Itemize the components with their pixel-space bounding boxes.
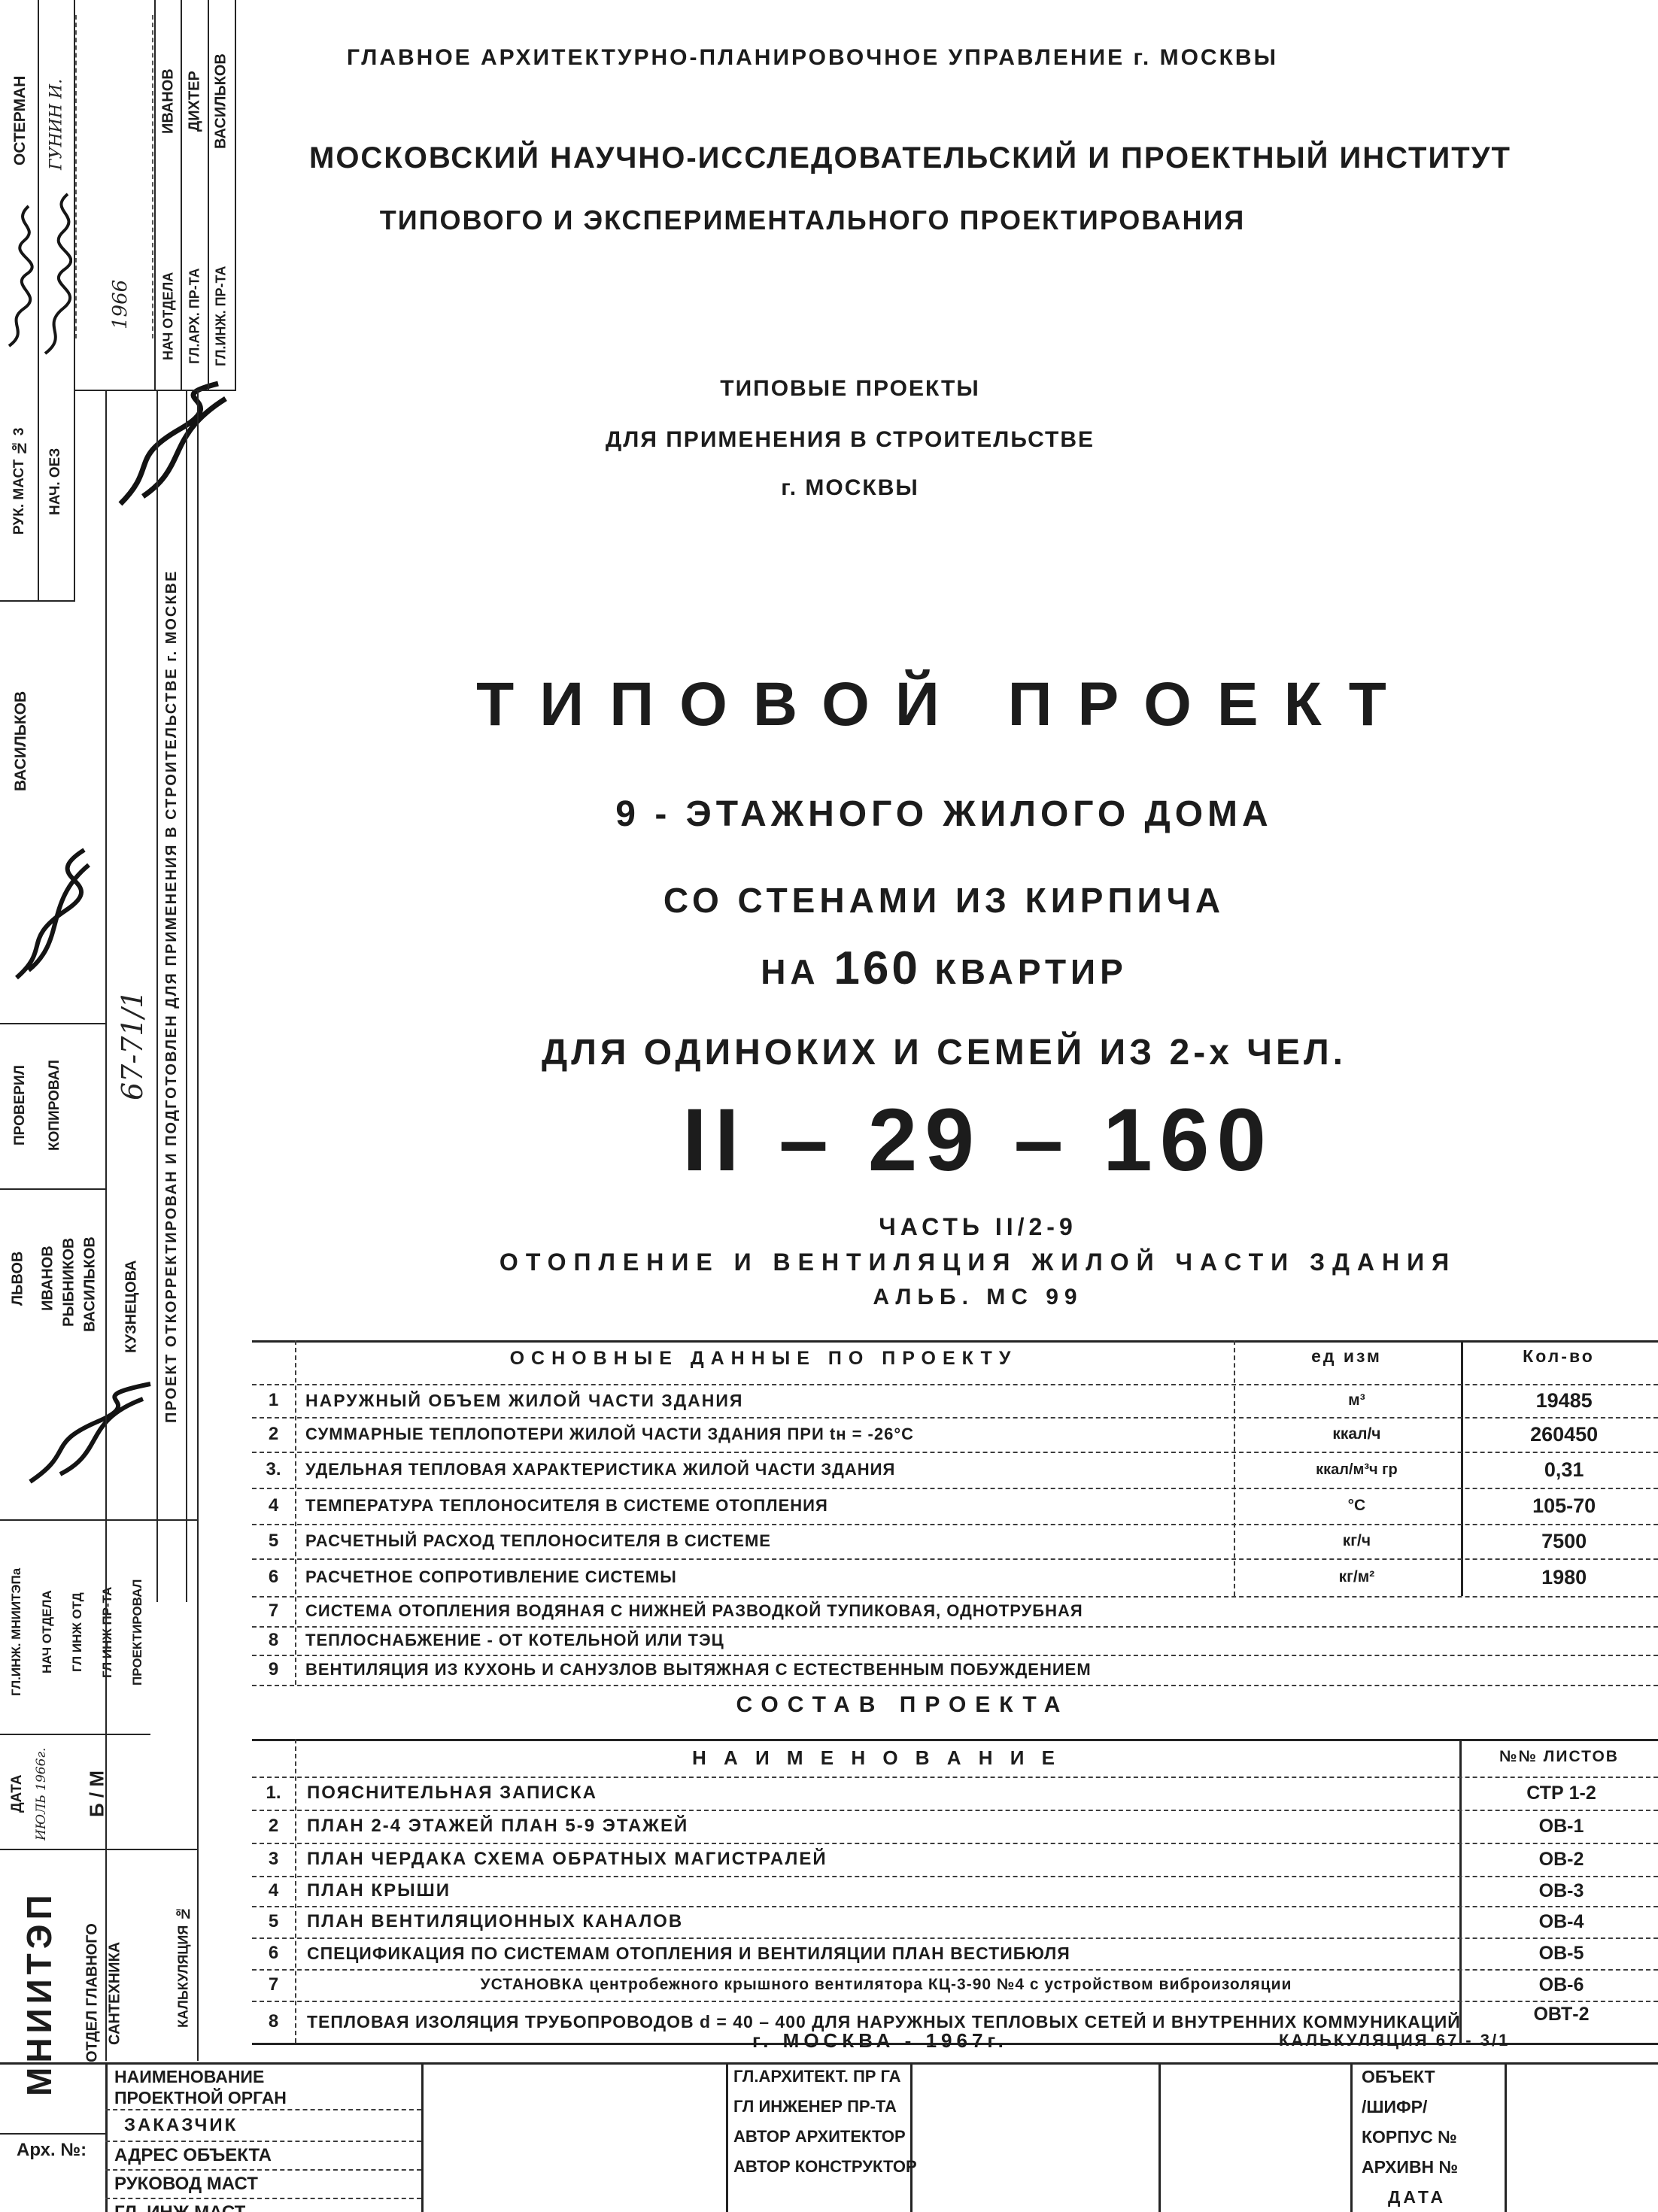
footer-org-label: ПРОЕКТНОЙ ОРГАН: [114, 2088, 287, 2108]
row-sheet: ОВ-2: [1465, 1849, 1657, 1871]
footer-org-label: РУКОВОД МАСТ: [114, 2174, 258, 2195]
contents-title: СОСТАВ ПРОЕКТА: [527, 1692, 1279, 1718]
sidebar-person-name: ИВАНОВ: [38, 1203, 59, 1354]
row-number: 3.: [252, 1459, 295, 1480]
row-sheet: ОВ-3: [1465, 1880, 1657, 1902]
row-number: 7: [252, 1974, 295, 1995]
row-sheet: ОВ-6: [1465, 1974, 1657, 1996]
row-number: 8: [252, 2011, 295, 2032]
sidebar-role-label: ГЛ.ИНЖ. МНИИТЭПа: [5, 1534, 29, 1730]
row-unit: кг/ч: [1243, 1532, 1471, 1550]
table-border: [252, 1739, 1658, 1741]
footer-org-label: ГЛ. ИНЖ МАСТ: [114, 2202, 245, 2212]
table-row: 5 РАСЧЕТНЫЙ РАСХОД ТЕПЛОНОСИТЕЛЯ В СИСТЕ…: [252, 1524, 1658, 1558]
divider: [0, 1734, 150, 1735]
row-name: ТЕПЛОСНАБЖЕНИЕ - ОТ КОТЕЛЬНОЙ ИЛИ ТЭЦ: [295, 1631, 1658, 1650]
signature: [23, 1376, 158, 1489]
calc-label: КАЛЬКУЛЯЦИЯ №: [172, 1880, 196, 2053]
row-number: 6: [252, 1567, 295, 1588]
divider: [181, 0, 182, 391]
table-border: [105, 2169, 421, 2171]
footer-table: НАИМЕНОВАНИЕ ПРОЕКТНОЙ ОРГАН ЗАКАЗЧИК АД…: [0, 2062, 1658, 2212]
title-page: РУК. МАСТ № 3 ОСТЕРМАН НАЧ. ОЕЗ ГУНИН И.…: [0, 0, 1658, 2212]
bm-mark: Б / М: [81, 1745, 113, 1843]
row-sheet: ОВ-5: [1465, 1943, 1657, 1965]
table-row: 2 СУММАРНЫЕ ТЕПЛОПОТЕРИ ЖИЛОЙ ЧАСТИ ЗДАН…: [252, 1417, 1658, 1452]
footer-person-label: АВТОР АРХИТЕКТОР: [733, 2127, 906, 2147]
main-title: ТИПОВОЙ ПРОЕКТ: [301, 669, 1587, 740]
title-line5: ДЛЯ ОДИНОКИХ И СЕМЕЙ ИЗ 2-х ЧЕЛ.: [339, 1032, 1550, 1073]
divider: [0, 1023, 105, 1024]
sidebar-person-name: ВАСИЛЬКОВ: [80, 1203, 101, 1365]
calc-number-hand: 67-71/1: [111, 970, 153, 1121]
row-number: 2: [252, 1424, 295, 1445]
sidebar-person-name: ОСТЕРМАН: [5, 45, 36, 196]
table-border: [1350, 2062, 1353, 2212]
divider: [197, 391, 199, 2061]
sidebar-role-label: ГЛ ИНЖ ПР-ТА: [96, 1534, 119, 1730]
row-name: НАРУЖНЫЙ ОБЪЕМ ЖИЛОЙ ЧАСТИ ЗДАНИЯ: [295, 1391, 1243, 1411]
footer-calc-note: КАЛЬКУЛЯЦИЯ 67 - 3/1: [1279, 2031, 1510, 2050]
sidebar-role-label: ГЛ ИНЖ ОТД: [66, 1534, 89, 1730]
divider: [74, 390, 236, 391]
row-qty: 7500: [1470, 1530, 1658, 1553]
row-number: 5: [252, 1911, 295, 1932]
org-header-line3: ТИПОВОГО И ЭКСПЕРИМЕНТАЛЬНОГО ПРОЕКТИРОВ…: [248, 205, 1377, 236]
signature: [39, 188, 72, 361]
row-name: ПЛАН КРЫШИ: [295, 1880, 1465, 1901]
contents-sheets-header: №№ ЛИСТОВ: [1463, 1748, 1655, 1766]
divider: [0, 1188, 105, 1190]
row-unit: м³: [1243, 1391, 1471, 1409]
footer-object-label: АРХИВН №: [1362, 2157, 1458, 2177]
row-sheet: ОВ-1: [1465, 1816, 1657, 1837]
row-number: 5: [252, 1531, 295, 1552]
qty-header: Кол-во: [1465, 1346, 1653, 1367]
signature: [2, 196, 36, 353]
divider: [74, 0, 75, 602]
row-name: СИСТЕМА ОТОПЛЕНИЯ ВОДЯНАЯ С НИЖНЕЙ РАЗВО…: [295, 1601, 1658, 1621]
project-data-table: ОСНОВНЫЕ ДАННЫЕ ПО ПРОЕКТУ ед изм Кол-во…: [252, 1340, 1658, 1685]
row-name: ТЕМПЕРАТУРА ТЕПЛОНОСИТЕЛЯ В СИСТЕМЕ ОТОП…: [295, 1496, 1243, 1516]
row-number: 3: [252, 1849, 295, 1870]
title-line3: СО СТЕНАМИ ИЗ КИРПИЧА: [376, 880, 1512, 921]
table-row: 2 ПЛАН 2-4 ЭТАЖЕЙ ПЛАН 5-9 ЭТАЖЕЙ ОВ-1: [252, 1810, 1658, 1843]
footer-object-label: ДАТА: [1388, 2187, 1446, 2207]
album-line: АЛЬБ. МС 99: [527, 1285, 1429, 1310]
divider: [105, 391, 107, 2061]
table-border: [105, 2198, 421, 2199]
sidebar-role-label: НАЧ ОТДЕЛА: [36, 1534, 59, 1730]
table-row: 4 ТЕМПЕРАТУРА ТЕПЛОНОСИТЕЛЯ В СИСТЕМЕ ОТ…: [252, 1488, 1658, 1524]
divider: [0, 600, 75, 602]
unit-header: ед изм: [1237, 1346, 1456, 1367]
row-name: ВЕНТИЛЯЦИЯ ИЗ КУХОНЬ И САНУЗЛОВ ВЫТЯЖНАЯ…: [295, 1660, 1658, 1679]
table-border: [252, 1340, 1658, 1343]
sidebar-role-label: НАЧ. ОЕЗ: [39, 369, 72, 594]
data-table-title: ОСНОВНЫЕ ДАННЫЕ ПО ПРОЕКТУ: [297, 1348, 1230, 1370]
subject-line: ОТОПЛЕНИЕ И ВЕНТИЛЯЦИЯ ЖИЛОЙ ЧАСТИ ЗДАНИ…: [301, 1249, 1655, 1276]
row-unit: ккал/м³ч гр: [1243, 1461, 1471, 1479]
date-value: ИЮЛЬ 1966г.: [30, 1741, 53, 1846]
row-number: 4: [252, 1880, 295, 1901]
org-header-line2: МОСКОВСКИЙ НАУЧНО-ИССЛЕДОВАТЕЛЬСКИЙ И ПР…: [226, 141, 1595, 175]
sidebar-person-name: РЫБНИКОВ: [59, 1203, 80, 1361]
series-line3: г. МОСКВЫ: [474, 475, 1226, 501]
row-sheet: СТР 1-2: [1465, 1783, 1657, 1804]
table-border: [726, 2062, 728, 2212]
table-row: 6 РАСЧЕТНОЕ СОПРОТИВЛЕНИЕ СИСТЕМЫ кг/м² …: [252, 1558, 1658, 1596]
footer-person-label: ГЛ.АРХИТЕКТ. ПР ГА: [733, 2067, 901, 2086]
sidebar-person-name: ГУНИН И.: [41, 53, 72, 196]
row-number: 1.: [252, 1783, 295, 1804]
row-sheet: ОВ-4: [1465, 1911, 1657, 1933]
row-name: РАСЧЕТНЫЙ РАСХОД ТЕПЛОНОСИТЕЛЯ В СИСТЕМЕ: [295, 1531, 1243, 1551]
contents-name-header: Н А И М Е Н О В А Н И Е: [297, 1746, 1456, 1770]
row-qty: 105-70: [1470, 1494, 1658, 1518]
footer-person-label: ГЛ ИНЖЕНЕР ПР-ТА: [733, 2097, 897, 2116]
row-name: ПЛАН ВЕНТИЛЯЦИОННЫХ КАНАЛОВ: [295, 1911, 1465, 1932]
table-row: 1. ПОЯСНИТЕЛЬНАЯ ЗАПИСКА СТР 1-2: [252, 1777, 1658, 1810]
table-border: [0, 2062, 1658, 2065]
row-name: ПЛАН 2-4 ЭТАЖЕЙ ПЛАН 5-9 ЭТАЖЕЙ: [295, 1816, 1465, 1837]
sidebar-person-name: ДИХТЕР: [183, 30, 207, 173]
checked-label: ПРОВЕРИЛ: [6, 1038, 35, 1173]
table-border: [421, 2062, 424, 2212]
table-border: [1158, 2062, 1161, 2212]
series-line1: ТИПОВЫЕ ПРОЕКТЫ: [474, 376, 1226, 402]
divider: [154, 0, 156, 391]
row-qty: 0,31: [1470, 1458, 1658, 1482]
row-unit: кг/м²: [1243, 1568, 1471, 1586]
signature: [6, 827, 96, 985]
org-header-line1: ГЛАВНОЕ АРХИТЕКТУРНО-ПЛАНИРОВОЧНОЕ УПРАВ…: [293, 45, 1332, 71]
footer-org-label: НАИМЕНОВАНИЕ: [114, 2067, 264, 2087]
table-border: [252, 1685, 1658, 1686]
row-name: ПЛАН ЧЕРДАКА СХЕМА ОБРАТНЫХ МАГИСТРАЛЕЙ: [295, 1849, 1465, 1870]
footer-object-label: /ШИФР/: [1362, 2097, 1427, 2117]
title-line4: НА 160 КВАРТИР: [376, 942, 1512, 995]
city-year: г. МОСКВА - 1967г.: [752, 2029, 1008, 2053]
divider: [0, 1849, 197, 1850]
table-row: 7 УСТАНОВКА центробежного крышного венти…: [252, 1969, 1658, 2001]
table-border: [910, 2062, 913, 2212]
sidebar-role-label: ПРОЕКТИРОВАЛ: [126, 1534, 149, 1730]
footer-person-label: АВТОР КОНСТРУКТОР: [733, 2157, 917, 2177]
row-number: 1: [252, 1390, 295, 1411]
table-border: [105, 2062, 108, 2212]
year-note: 1966: [105, 263, 135, 346]
table-row: 4 ПЛАН КРЫШИ ОВ-3: [252, 1876, 1658, 1906]
row-number: 8: [252, 1630, 295, 1651]
part-line: ЧАСТЬ II/2-9: [527, 1213, 1429, 1241]
divider: [0, 1519, 197, 1521]
row-sheet: ОВТ-2: [1465, 2001, 1657, 2025]
divider: [38, 0, 39, 602]
table-row: 3 ПЛАН ЧЕРДАКА СХЕМА ОБРАТНЫХ МАГИСТРАЛЕ…: [252, 1843, 1658, 1876]
sidebar-person-name: ИВАНОВ: [156, 30, 181, 173]
sidebar-role-label: РУК. МАСТ № 3: [3, 369, 36, 594]
table-row: 1 НАРУЖНЫЙ ОБЪЕМ ЖИЛОЙ ЧАСТИ ЗДАНИЯ м³ 1…: [252, 1384, 1658, 1417]
table-border: [105, 2109, 421, 2110]
title-line4-suffix: КВАРТИР: [935, 952, 1128, 991]
project-index: II – 29 – 160: [376, 1089, 1580, 1191]
divider: [235, 0, 236, 391]
table-border: [1505, 2062, 1507, 2212]
footer-org-label: АДРЕС ОБЪЕКТА: [114, 2145, 272, 2166]
row-number: 9: [252, 1659, 295, 1680]
table-row: 5 ПЛАН ВЕНТИЛЯЦИОННЫХ КАНАЛОВ ОВ-4: [252, 1906, 1658, 1937]
divider: [208, 0, 209, 391]
contents-table: Н А И М Е Н О В А Н И Е №№ ЛИСТОВ 1. ПОЯ…: [252, 1739, 1658, 2043]
copied-label: КОПИРОВАЛ: [41, 1038, 69, 1173]
table-row: 6 СПЕЦИФИКАЦИЯ ПО СИСТЕМАМ ОТОПЛЕНИЯ И В…: [252, 1937, 1658, 1969]
corrected-note-strip: ПРОЕКТ ОТКОРРЕКТИРОВАН И ПОДГОТОВЛЕН ДЛЯ…: [156, 391, 187, 1602]
row-name: СПЕЦИФИКАЦИЯ ПО СИСТЕМАМ ОТОПЛЕНИЯ И ВЕН…: [295, 1943, 1465, 1964]
row-name: УСТАНОВКА центробежного крышного вентиля…: [295, 1976, 1465, 1994]
apartment-count: 160: [834, 942, 920, 994]
table-row: 3. УДЕЛЬНАЯ ТЕПЛОВАЯ ХАРАКТЕРИСТИКА ЖИЛО…: [252, 1452, 1658, 1488]
footer-object-label: КОРПУС №: [1362, 2127, 1457, 2147]
row-name: РАСЧЕТНОЕ СОПРОТИВЛЕНИЕ СИСТЕМЫ: [295, 1567, 1243, 1587]
title-line4-prefix: НА: [761, 952, 819, 991]
title-line2: 9 - ЭТАЖНОГО ЖИЛОГО ДОМА: [376, 793, 1512, 835]
date-label: ДАТА: [6, 1745, 29, 1843]
table-row: 9 ВЕНТИЛЯЦИЯ ИЗ КУХОНЬ И САНУЗЛОВ ВЫТЯЖН…: [252, 1655, 1658, 1685]
corrected-note-text: ПРОЕКТ ОТКОРРЕКТИРОВАН И ПОДГОТОВЛЕН ДЛЯ…: [158, 391, 186, 1602]
table-border: [105, 2141, 421, 2142]
row-unit: °С: [1243, 1497, 1471, 1515]
row-number: 2: [252, 1816, 295, 1837]
table-row: 7 СИСТЕМА ОТОПЛЕНИЯ ВОДЯНАЯ С НИЖНЕЙ РАЗ…: [252, 1596, 1658, 1626]
sidebar-person-name: КУЗНЕЦОВА: [120, 1222, 143, 1391]
row-qty: 19485: [1470, 1389, 1658, 1412]
series-line2: ДЛЯ ПРИМЕНЕНИЯ В СТРОИТЕЛЬСТВЕ: [474, 427, 1226, 453]
row-name: СУММАРНЫЕ ТЕПЛОПОТЕРИ ЖИЛОЙ ЧАСТИ ЗДАНИЯ…: [295, 1425, 1243, 1444]
row-qty: 1980: [1470, 1566, 1658, 1589]
footer-object-label: ОБЪЕКТ: [1362, 2067, 1435, 2087]
row-number: 4: [252, 1495, 295, 1516]
row-name: ПОЯСНИТЕЛЬНАЯ ЗАПИСКА: [295, 1783, 1465, 1804]
row-qty: 260450: [1470, 1423, 1658, 1446]
sidebar-person-name: ЛЬВОВ: [6, 1203, 30, 1354]
row-name: УДЕЛЬНАЯ ТЕПЛОВАЯ ХАРАКТЕРИСТИКА ЖИЛОЙ Ч…: [295, 1460, 1243, 1479]
row-number: 7: [252, 1601, 295, 1622]
footer-org-label: ЗАКАЗЧИК: [124, 2115, 238, 2136]
table-row: 8 ТЕПЛОСНАБЖЕНИЕ - ОТ КОТЕЛЬНОЙ ИЛИ ТЭЦ: [252, 1626, 1658, 1655]
row-number: 6: [252, 1943, 295, 1964]
sidebar-person-name: ВАСИЛЬКОВ: [6, 662, 36, 820]
row-unit: ккал/ч: [1243, 1425, 1471, 1443]
